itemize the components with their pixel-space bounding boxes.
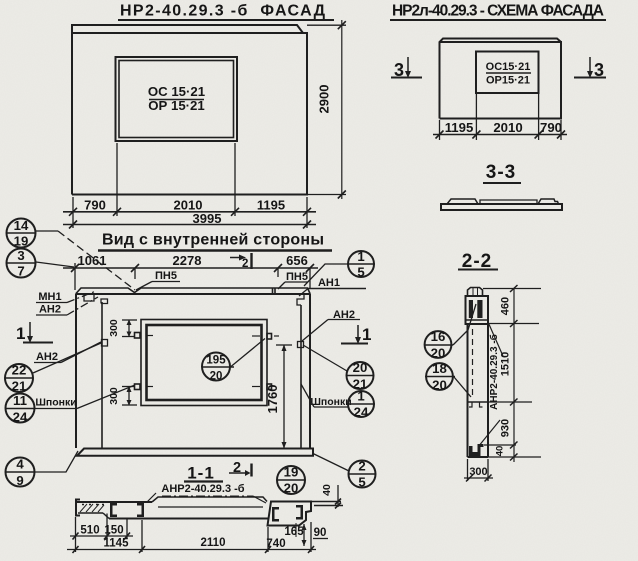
svg-text:195: 195 <box>206 355 226 367</box>
svg-text:790: 790 <box>84 198 106 213</box>
svg-text:1760: 1760 <box>265 385 280 414</box>
svg-text:МН1: МН1 <box>38 291 61 303</box>
svg-text:ОС 15·21: ОС 15·21 <box>148 84 205 99</box>
svg-text:20: 20 <box>432 378 447 393</box>
svg-text:20: 20 <box>431 346 446 361</box>
svg-text:4: 4 <box>16 457 24 472</box>
svg-text:790: 790 <box>540 120 562 135</box>
svg-text:3: 3 <box>17 248 24 263</box>
svg-text:24: 24 <box>354 405 369 420</box>
svg-text:930: 930 <box>500 419 512 437</box>
svg-text:740: 740 <box>266 538 285 550</box>
svg-text:20: 20 <box>210 371 223 383</box>
svg-text:1195: 1195 <box>257 198 285 213</box>
svg-text:24: 24 <box>13 410 28 425</box>
svg-text:АН2: АН2 <box>36 351 58 363</box>
svg-text:16: 16 <box>431 329 446 344</box>
svg-text:22: 22 <box>12 363 27 378</box>
svg-text:Шпонки: Шпонки <box>310 396 351 408</box>
svg-text:11: 11 <box>13 393 27 408</box>
svg-text:5: 5 <box>358 475 365 490</box>
svg-text:АН1: АН1 <box>318 277 340 289</box>
svg-text:2110: 2110 <box>201 537 226 549</box>
svg-text:1: 1 <box>16 324 25 343</box>
svg-text:2: 2 <box>358 459 365 474</box>
svg-text:АН2: АН2 <box>39 304 61 316</box>
svg-text:20: 20 <box>353 360 368 375</box>
svg-text:ПН5: ПН5 <box>155 270 177 282</box>
svg-text:1: 1 <box>357 389 364 404</box>
svg-text:1: 1 <box>357 249 364 264</box>
svg-text:656: 656 <box>286 253 308 268</box>
svg-text:300: 300 <box>108 387 120 405</box>
svg-text:7: 7 <box>17 264 24 279</box>
svg-text:460: 460 <box>500 297 512 315</box>
svg-text:ПН5: ПН5 <box>286 271 308 283</box>
svg-text:АНР2-40.29.3 -б: АНР2-40.29.3 -б <box>161 483 244 495</box>
svg-text:165: 165 <box>284 526 304 538</box>
svg-text:20: 20 <box>284 481 299 496</box>
svg-text:2010: 2010 <box>493 120 522 135</box>
svg-text:90: 90 <box>314 527 327 539</box>
svg-text:2278: 2278 <box>173 253 202 268</box>
svg-text:3995: 3995 <box>193 211 222 226</box>
svg-text:1: 1 <box>362 325 371 344</box>
svg-text:150: 150 <box>104 525 123 537</box>
svg-text:3-3: 3-3 <box>486 162 516 183</box>
svg-text:2: 2 <box>242 258 248 270</box>
svg-text:ОР15·21: ОР15·21 <box>486 75 530 87</box>
svg-text:40: 40 <box>495 446 506 457</box>
svg-text:1145: 1145 <box>104 538 130 550</box>
svg-text:1510: 1510 <box>500 352 512 376</box>
svg-text:9: 9 <box>16 473 23 488</box>
svg-text:18: 18 <box>432 361 447 376</box>
svg-text:Шпонки: Шпонки <box>35 397 76 409</box>
svg-text:19: 19 <box>284 465 299 480</box>
svg-text:40: 40 <box>321 484 333 496</box>
svg-text:1195: 1195 <box>445 120 474 135</box>
svg-text:21: 21 <box>12 379 27 394</box>
svg-text:ОС15·21: ОС15·21 <box>486 61 531 73</box>
svg-text:510: 510 <box>80 525 99 537</box>
svg-text:300: 300 <box>108 319 120 337</box>
svg-text:НР2л-40.29.3 - СХЕМА ФАСАДА: НР2л-40.29.3 - СХЕМА ФАСАДА <box>392 3 604 20</box>
svg-text:1061: 1061 <box>78 253 107 268</box>
svg-text:ОР 15·21: ОР 15·21 <box>148 98 204 113</box>
svg-text:НР2-40.29.3 -б ФАСАД: НР2-40.29.3 -б ФАСАД <box>120 3 326 20</box>
svg-text:19: 19 <box>14 234 29 249</box>
svg-text:1-1: 1-1 <box>187 464 215 483</box>
svg-text:2900: 2900 <box>317 85 332 114</box>
svg-text:Вид с внутренней стороны: Вид с внутренней стороны <box>102 232 324 249</box>
svg-text:300: 300 <box>469 466 487 478</box>
svg-text:5: 5 <box>357 265 364 280</box>
svg-text:14: 14 <box>14 218 29 233</box>
